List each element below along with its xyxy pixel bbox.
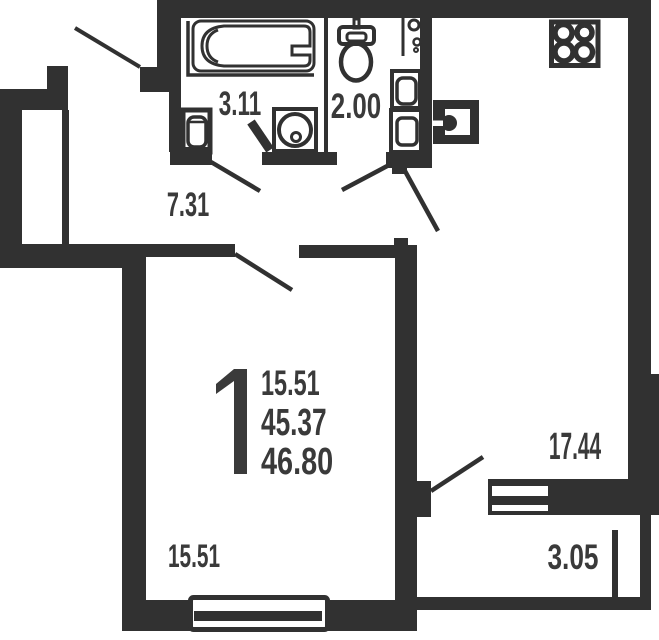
svg-text:2.00: 2.00 — [331, 86, 381, 126]
svg-text:15.51: 15.51 — [261, 364, 320, 403]
svg-text:46.80: 46.80 — [261, 440, 333, 483]
svg-text:3.05: 3.05 — [547, 537, 598, 577]
svg-text:17.44: 17.44 — [549, 426, 601, 468]
svg-text:15.51: 15.51 — [168, 539, 220, 575]
svg-text:3.11: 3.11 — [219, 85, 261, 123]
svg-text:7.31: 7.31 — [167, 186, 209, 224]
svg-text:45.37: 45.37 — [261, 400, 327, 443]
